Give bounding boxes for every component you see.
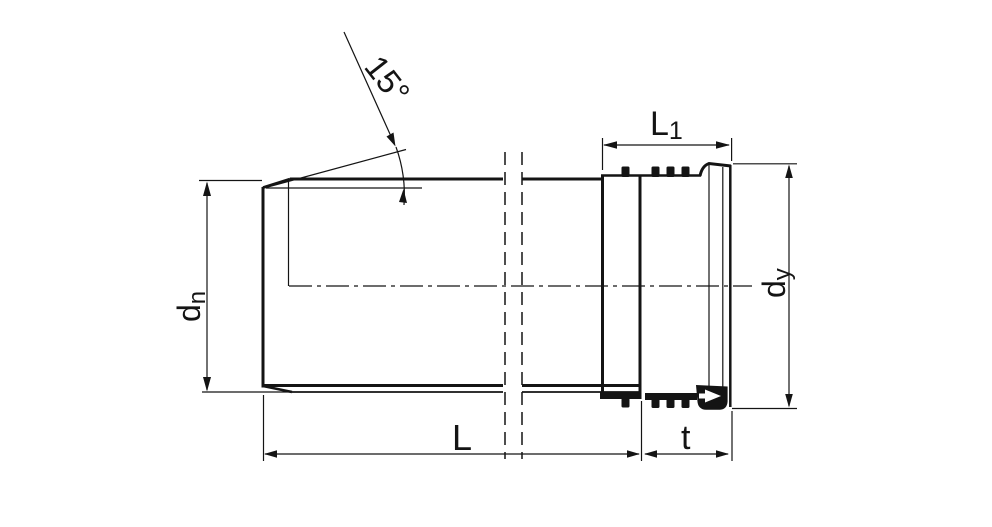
label-insertion-depth: t (681, 419, 691, 457)
arrowhead-left (644, 450, 657, 457)
dimension-t: t (644, 411, 732, 461)
arrowhead-leader (387, 133, 396, 147)
label-socket-diameter: dy (756, 268, 796, 298)
socket-rib-bottom (652, 399, 660, 409)
label-socket-length: L1 (650, 105, 683, 145)
socket-rib (622, 167, 630, 178)
socket-rib-bottom (682, 399, 690, 409)
arrowhead-right (716, 141, 730, 149)
dimension-l1: L1 (603, 105, 732, 170)
arrowhead-down (785, 394, 793, 408)
socket-bottom-wall (600, 392, 641, 399)
socket-rib-bottom (667, 399, 675, 409)
label-total-length: L (452, 417, 472, 458)
dimension-dn: dn (171, 181, 292, 393)
arrowhead-right (716, 450, 729, 457)
pipe-socket-drawing: dn 15° L1 dy L (0, 0, 992, 527)
socket-lip-top (700, 164, 731, 177)
break-lines (505, 152, 522, 459)
socket-rib-bottom (622, 398, 630, 408)
arrowhead-left (603, 141, 617, 149)
seal-lip-detail (699, 394, 705, 399)
socket (600, 164, 731, 410)
arrowhead-up (785, 165, 793, 179)
label-chamfer-angle: 15° (357, 49, 417, 111)
angle-reference-slant-line (264, 150, 406, 189)
socket-rib (682, 167, 690, 178)
socket-rib (667, 167, 675, 178)
label-outer-diameter: dn (171, 291, 211, 322)
arrowhead-down (203, 377, 211, 392)
arrowhead-arc (399, 189, 407, 203)
arrowhead-left (264, 450, 277, 457)
pipe-chamfer-top (263, 179, 290, 188)
arrowhead-right (627, 450, 640, 457)
dimension-l: L (264, 395, 642, 461)
drawing-canvas: dn 15° L1 dy L (0, 0, 992, 527)
socket-rib (652, 167, 660, 178)
arrowhead-up (203, 182, 211, 197)
